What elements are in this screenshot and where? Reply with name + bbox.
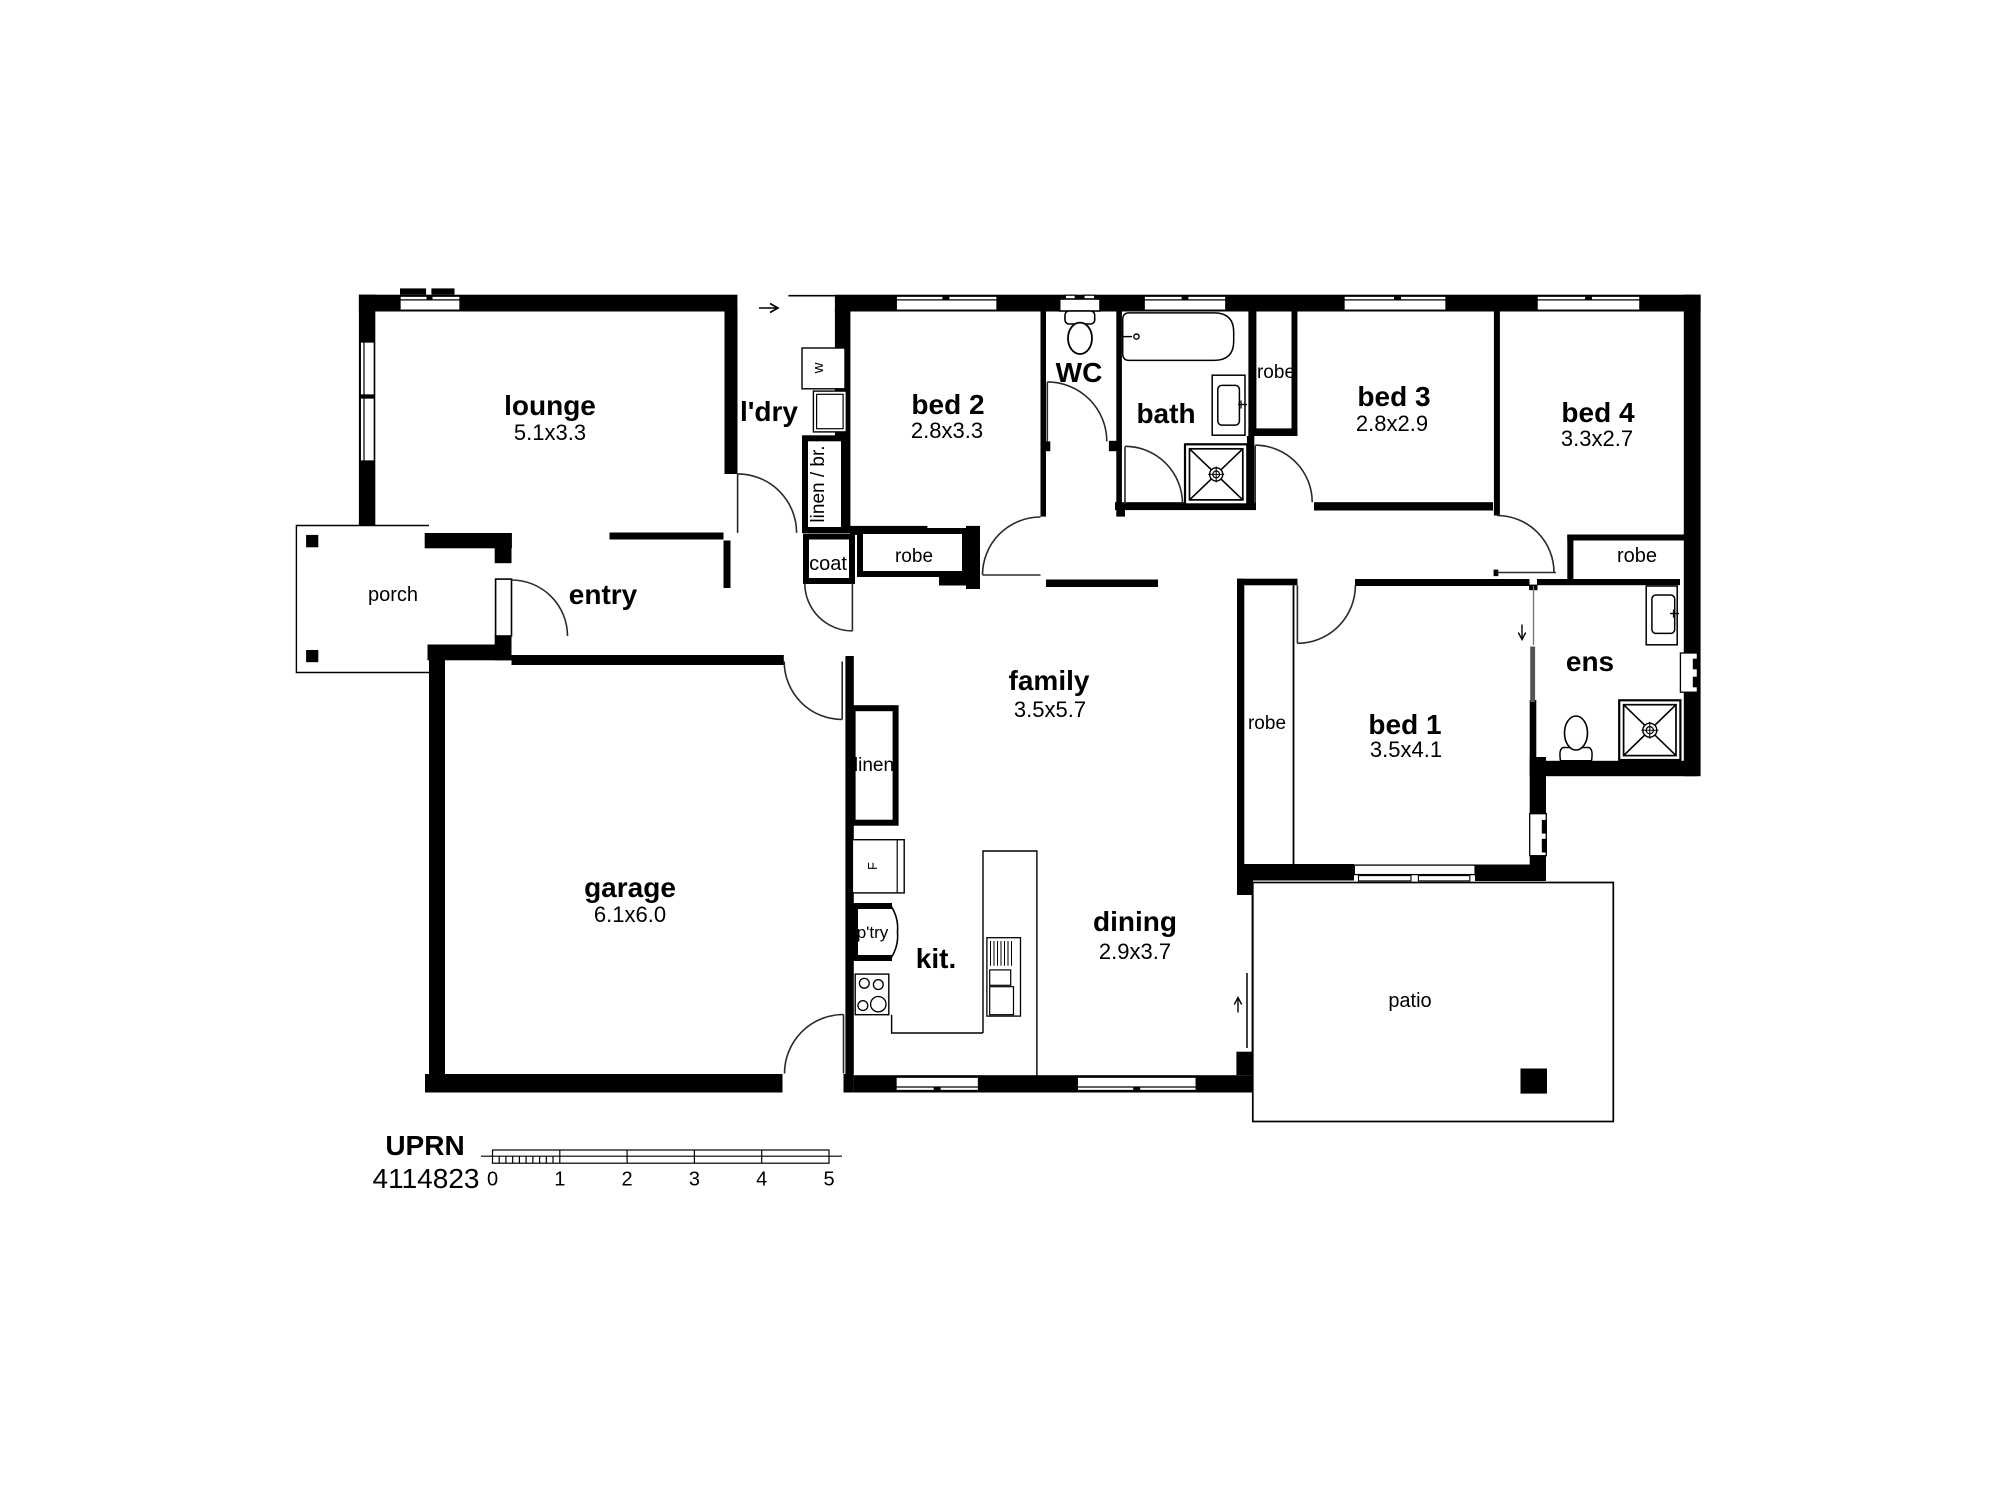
- svg-text:robe: robe: [1248, 713, 1286, 734]
- svg-text:l'dry: l'dry: [740, 396, 798, 427]
- svg-text:bed 4: bed 4: [1561, 397, 1635, 428]
- svg-text:2.8x3.3: 2.8x3.3: [911, 418, 983, 443]
- svg-text:2.9x3.7: 2.9x3.7: [1099, 939, 1171, 964]
- svg-text:porch: porch: [368, 584, 418, 606]
- svg-text:2: 2: [622, 1169, 633, 1191]
- svg-text:6.1x6.0: 6.1x6.0: [594, 902, 666, 927]
- svg-text:bed 2: bed 2: [911, 389, 984, 420]
- svg-text:5: 5: [823, 1169, 834, 1191]
- svg-text:w: w: [810, 362, 827, 374]
- svg-text:0: 0: [487, 1169, 498, 1191]
- svg-text:dining: dining: [1093, 906, 1177, 937]
- svg-text:3.5x4.1: 3.5x4.1: [1370, 737, 1442, 762]
- svg-text:linen / br.: linen / br.: [808, 445, 829, 522]
- svg-text:4114823: 4114823: [373, 1163, 480, 1194]
- svg-text:5.1x3.3: 5.1x3.3: [514, 420, 586, 445]
- svg-text:F: F: [865, 862, 880, 870]
- svg-text:lounge: lounge: [504, 390, 596, 421]
- svg-text:UPRN: UPRN: [385, 1130, 464, 1161]
- svg-text:bed 1: bed 1: [1368, 709, 1441, 740]
- svg-text:robe: robe: [1617, 545, 1657, 567]
- svg-text:3.5x5.7: 3.5x5.7: [1014, 697, 1086, 722]
- svg-text:ens: ens: [1566, 646, 1614, 677]
- svg-text:patio: patio: [1388, 990, 1431, 1012]
- svg-text:entry: entry: [569, 579, 638, 610]
- svg-text:family: family: [1009, 665, 1090, 696]
- svg-text:3.3x2.7: 3.3x2.7: [1561, 426, 1633, 451]
- svg-text:bath: bath: [1136, 398, 1195, 429]
- svg-text:bed 3: bed 3: [1357, 381, 1430, 412]
- svg-text:4: 4: [756, 1169, 767, 1191]
- svg-text:coat: coat: [809, 553, 847, 575]
- svg-text:robe: robe: [895, 546, 933, 567]
- svg-text:WC: WC: [1056, 357, 1103, 388]
- svg-text:kit.: kit.: [916, 943, 956, 974]
- svg-text:robe: robe: [1257, 362, 1295, 383]
- svg-text:1: 1: [554, 1169, 565, 1191]
- svg-text:linen: linen: [854, 755, 894, 776]
- svg-text:2.8x2.9: 2.8x2.9: [1356, 411, 1428, 436]
- svg-text:3: 3: [689, 1169, 700, 1191]
- svg-text:garage: garage: [584, 872, 676, 903]
- svg-text:p'try: p'try: [857, 923, 889, 942]
